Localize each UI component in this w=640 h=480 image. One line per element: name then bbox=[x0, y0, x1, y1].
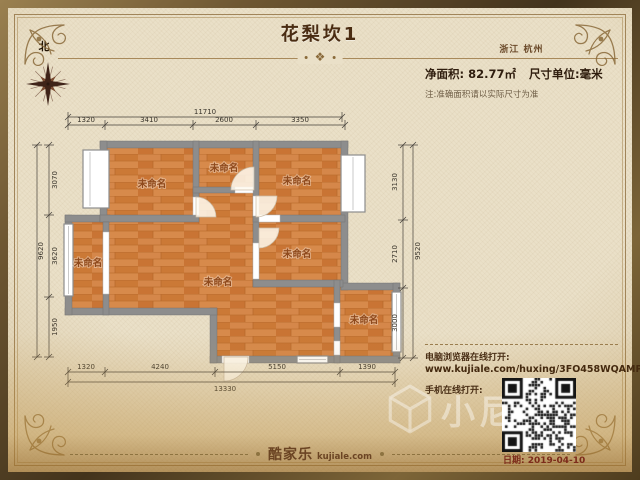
dim-top-seg: 2600 bbox=[215, 116, 233, 124]
footer-dot-icon bbox=[380, 452, 384, 456]
dim-bottom-seg: 5150 bbox=[268, 363, 286, 371]
brand-domain: kujiale.com bbox=[317, 452, 372, 462]
qr-code bbox=[502, 378, 576, 452]
room-label: 未命名 bbox=[282, 248, 312, 260]
dim-right-seg: 2710 bbox=[391, 245, 399, 263]
room-label: 未命名 bbox=[349, 314, 379, 326]
room-label: 未命名 bbox=[282, 175, 312, 187]
footer-dot-icon bbox=[256, 452, 260, 456]
divider-ornament: ❖ bbox=[298, 50, 343, 64]
dim-top-seg: 3350 bbox=[291, 116, 309, 124]
dim-right-seg: 3130 bbox=[391, 173, 399, 191]
dim-bottom-seg: 1320 bbox=[77, 363, 95, 371]
divider-dot-icon bbox=[305, 56, 308, 59]
date-label: 日期: 2019-04-10 bbox=[503, 453, 585, 466]
accuracy-note: 注:准确面积请以实际尺寸为准 bbox=[425, 88, 538, 100]
dim-left-seg: 3620 bbox=[51, 247, 59, 265]
desktop-open-label: 电脑浏览器在线打开: bbox=[425, 350, 510, 363]
dim-bottom-total: 13330 bbox=[214, 385, 236, 393]
mobile-open-label: 手机在线打开: bbox=[425, 383, 483, 396]
bay-window bbox=[83, 150, 109, 208]
location-label: 浙江 杭州 bbox=[425, 42, 618, 55]
dim-left-seg: 3070 bbox=[51, 171, 59, 189]
room-label: 未命名 bbox=[73, 257, 103, 269]
dim-top-seg: 3410 bbox=[140, 116, 158, 124]
dim-left-total: 9620 bbox=[37, 242, 45, 260]
room-label: 未命名 bbox=[209, 162, 239, 174]
area-info: 净面积: 82.77㎡ 尺寸单位:毫米 bbox=[425, 66, 603, 82]
poster-frame: 花梨坎1 ❖ 浙江 杭州 净面积: 82.77㎡ 尺寸单位:毫米 注:准确面积请… bbox=[0, 0, 640, 480]
dim-bottom-seg: 4240 bbox=[151, 363, 169, 371]
dim-right-seg: 3000 bbox=[391, 314, 399, 332]
share-divider bbox=[425, 344, 618, 345]
room-label: 未命名 bbox=[203, 276, 233, 288]
dim-top-total: 11710 bbox=[194, 108, 216, 116]
brand-name: 酷家乐 bbox=[268, 444, 313, 464]
dim-left-seg: 1950 bbox=[51, 318, 59, 336]
dim-right-total: 9520 bbox=[414, 242, 422, 260]
net-area-label: 净面积: 82.77㎡ bbox=[425, 66, 516, 82]
share-url-link[interactable]: www.kujiale.com/huxing/3FO458WQAMP4 bbox=[425, 364, 640, 375]
footer-dash-line bbox=[70, 454, 248, 455]
divider-dot-icon bbox=[332, 56, 335, 59]
room-label: 未命名 bbox=[137, 178, 167, 190]
dim-bottom-seg: 1390 bbox=[358, 363, 376, 371]
parchment-background: 花梨坎1 ❖ 浙江 杭州 净面积: 82.77㎡ 尺寸单位:毫米 注:准确面积请… bbox=[8, 8, 632, 472]
dim-top-seg: 1320 bbox=[77, 116, 95, 124]
entrance-door-arc bbox=[224, 357, 248, 381]
ornament-icon: ❖ bbox=[315, 50, 326, 64]
brand-logo: 酷家乐 kujiale.com bbox=[268, 444, 372, 464]
unit-label: 尺寸单位:毫米 bbox=[529, 66, 603, 82]
